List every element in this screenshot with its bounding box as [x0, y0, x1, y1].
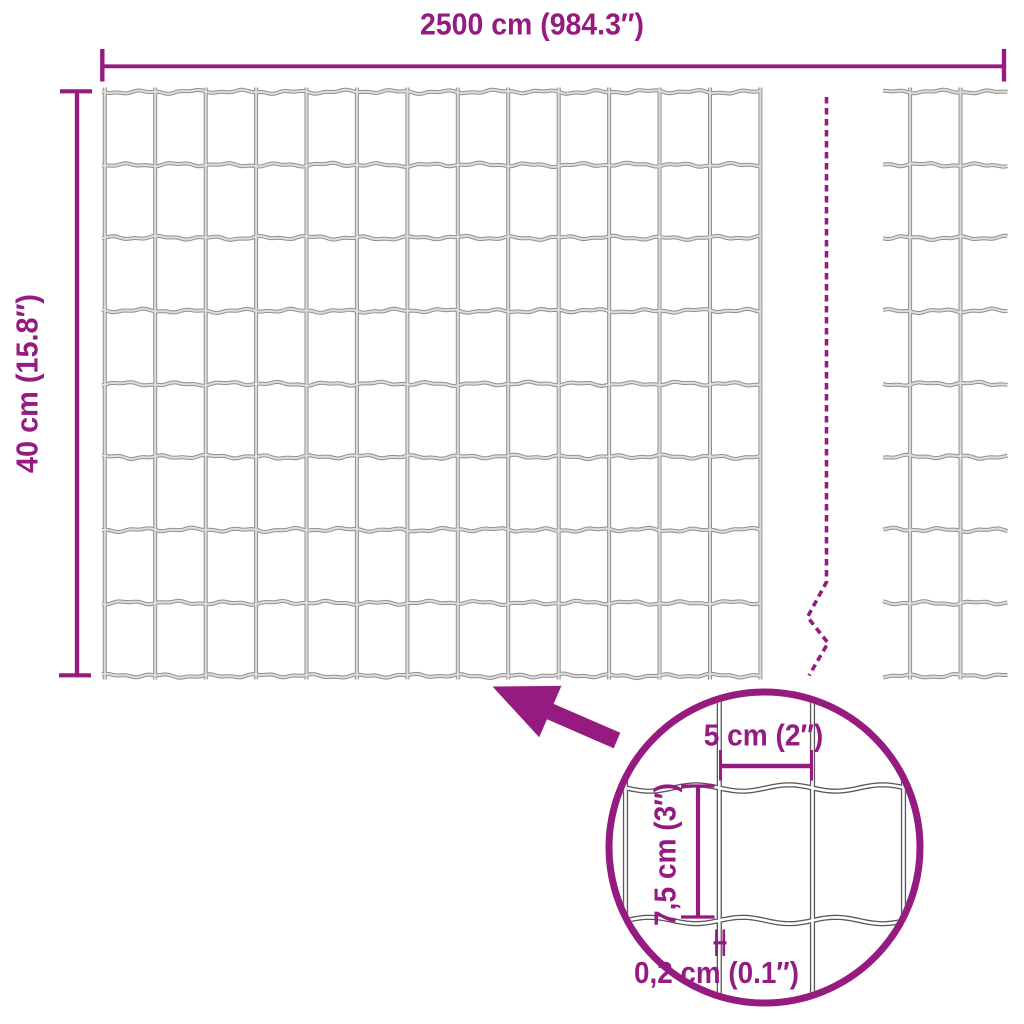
svg-text:2500 cm (984.3″): 2500 cm (984.3″): [420, 7, 644, 41]
svg-text:5 cm (2″): 5 cm (2″): [704, 718, 824, 753]
svg-text:7,5 cm (3″): 7,5 cm (3″): [648, 783, 683, 926]
svg-text:0,2 cm (0.1″): 0,2 cm (0.1″): [634, 956, 799, 991]
svg-text:40 cm (15.8″): 40 cm (15.8″): [11, 294, 45, 473]
